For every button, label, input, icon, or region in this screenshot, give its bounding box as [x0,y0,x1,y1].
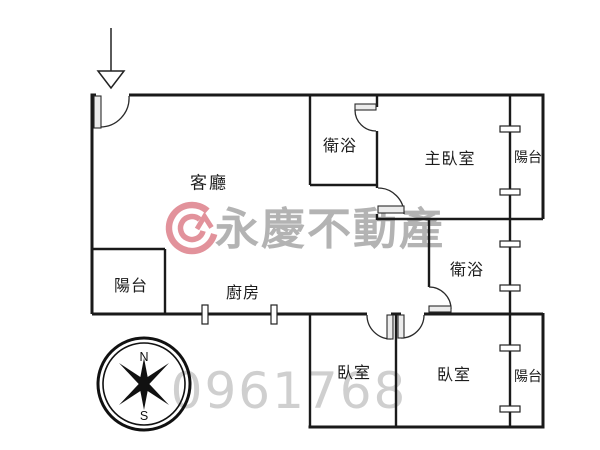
room-label-living: 客廳 [190,169,228,194]
master-door-leaf [378,206,404,213]
floorplan-linework: N S [0,0,600,450]
compass-south-label: S [140,409,148,423]
room-label-master: 主臥室 [424,145,475,169]
bedroom-left-door-leaf [387,315,393,339]
compass-icon: N S [98,338,190,430]
room-label-bedroom-right: 臥室 [437,361,471,385]
door-symbols [94,96,451,339]
room-label-kitchen: 廚房 [226,279,260,303]
compass-north-label: N [139,350,148,364]
room-label-bath-mid: 衛浴 [450,256,484,280]
room-label-balcony-left: 陽台 [114,272,148,296]
room-label-balcony-bottom-right: 陽台 [514,366,542,386]
room-label-bedroom-left: 臥室 [337,359,371,383]
bath-top-door-arc [355,110,376,131]
bedroom-right-door-leaf [398,315,404,338]
room-label-balcony-top-right: 陽台 [514,147,542,167]
bath-top-door-leaf [355,104,376,110]
floorplan-image: 永慶不動產 0961768 [0,0,600,450]
bath-mid-door-leaf [429,306,451,312]
entry-door-leaf [94,96,101,128]
room-label-bath-top: 衛浴 [323,132,357,156]
entry-door-arc [100,96,129,127]
entry-arrow-icon [98,28,124,88]
